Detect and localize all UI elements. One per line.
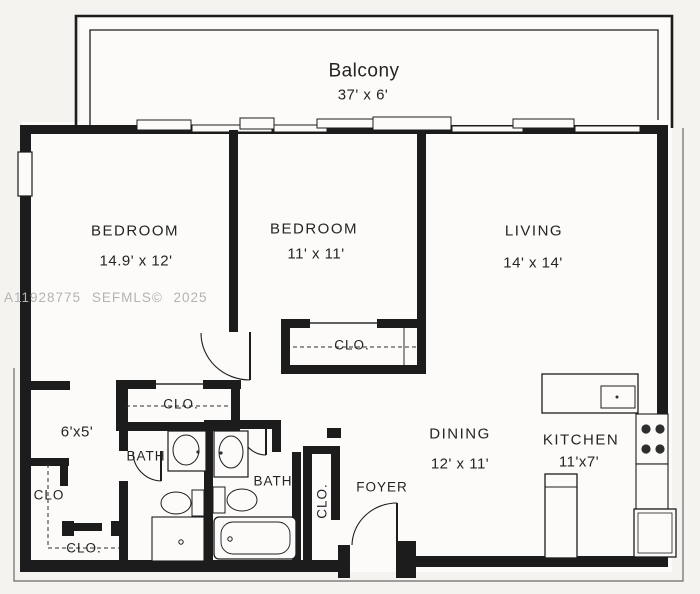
living-dims: 14' x 14' [503, 256, 562, 271]
bath2-toilet [213, 487, 257, 513]
kitchen-counter-right [636, 464, 668, 509]
foyer-label: FOYER [356, 480, 408, 494]
left-closet-lower-label: CLO. [66, 541, 102, 555]
balcony-dims: 37' x 6' [338, 88, 389, 103]
mls-watermark: A11928775 SEFMLS© 2025 [4, 290, 208, 305]
bath1-toilet [161, 490, 204, 516]
left-closet-upper-label: CLO [34, 488, 65, 502]
bedroom1-window [18, 152, 32, 196]
balcony-label: Balcony [328, 62, 399, 81]
hall-dims: 6'x5' [61, 425, 93, 440]
kitchen-label: KITCHEN [543, 433, 619, 448]
bedroom2-closet-label: CLO. [334, 338, 370, 352]
floor-plan: Balcony 37' x 6' BEDROOM 14.9' x 12' BED… [0, 0, 700, 594]
bath1-vanity-sink [168, 431, 206, 471]
bedroom1-dims: 14.9' x 12' [100, 254, 173, 269]
hall-closet-label: CLO. [163, 397, 199, 411]
bath1-shower [152, 517, 204, 561]
bathtub [214, 517, 296, 559]
dining-dims: 12' x 11' [431, 457, 489, 472]
kitchen-appliance-inner [638, 513, 672, 553]
bedroom2-dims: 11' x 11' [287, 247, 344, 262]
sink-drain [616, 396, 619, 399]
bath1-label: BATH [126, 449, 165, 463]
foyer-closet-label: CLO. [315, 483, 329, 519]
kitchen-dims: 11'x7' [559, 455, 599, 470]
stove [636, 414, 668, 464]
bath2-label: BATH [253, 474, 292, 488]
bath2-vanity-sink [214, 431, 248, 477]
living-label: LIVING [505, 224, 563, 239]
bedroom2-label: BEDROOM [270, 222, 358, 237]
dining-label: DINING [429, 427, 491, 442]
bedroom1-label: BEDROOM [91, 224, 179, 239]
